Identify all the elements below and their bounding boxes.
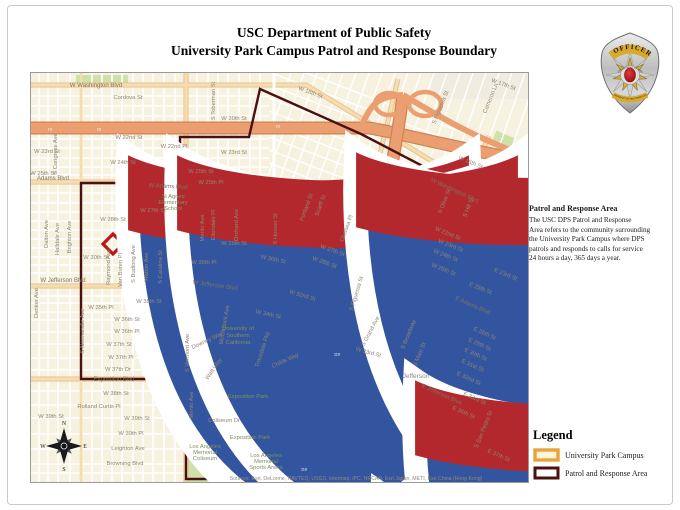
svg-text:10: 10 <box>276 124 281 129</box>
legend-item-patrol: Patrol and Response Area <box>533 466 679 480</box>
map-label: Southern <box>226 333 250 339</box>
info-body-line: the University Park Campus where DPS <box>529 235 679 245</box>
map-attribution: Sources: Esri, DeLorme, NAVTEQ, USGS, In… <box>230 476 483 482</box>
map-label: W 39th St <box>38 414 64 420</box>
map-label: S Normandie Ave <box>80 308 86 353</box>
map-label: Orchard Ave <box>234 209 240 241</box>
info-panel: Patrol and Response Area The USC DPS Pat… <box>529 204 679 264</box>
map-label: W 30th Pl <box>191 260 216 266</box>
map-label: W 37th Dr <box>105 367 131 373</box>
map-label: S Toberman St <box>211 81 217 120</box>
svg-text:110: 110 <box>301 467 308 472</box>
map-label: Adams Blvd <box>37 176 69 182</box>
map-label: S Vermont Ave <box>185 334 191 372</box>
map-label: S Congress Ave <box>53 133 59 174</box>
legend-label-patrol: Patrol and Response Area <box>565 469 647 478</box>
info-body-line: Area refers to the community surrounding <box>529 226 679 236</box>
map-label: W Washington Blvd <box>70 83 122 89</box>
map-label: W <box>40 444 46 450</box>
map-label: W 36th Pl <box>114 329 139 335</box>
map-label: W 23rd St <box>221 150 247 156</box>
map-label: Coliseum Dr <box>208 418 240 424</box>
map-label: Jefferson <box>403 373 430 380</box>
map-label: W 35th St <box>136 299 162 305</box>
map-label: Exposition Blvd <box>93 377 134 383</box>
map-label: W 28th St <box>100 217 126 223</box>
title-line-1: USC Department of Public Safety <box>30 24 638 42</box>
map-label: Exposition Park <box>228 394 268 400</box>
map-label: W 39th Pl <box>118 431 143 437</box>
info-body-line: patrols and responds to calls for servic… <box>529 245 679 255</box>
map-label: Brighton Ave <box>67 221 73 254</box>
page-title: USC Department of Public Safety Universi… <box>30 24 638 60</box>
map-label: W 35th Pl <box>88 305 113 311</box>
map-label: W 22nd Pl <box>161 144 188 150</box>
map-label: W 20th St <box>221 116 247 122</box>
map-label: E <box>83 444 87 450</box>
legend-swatch-patrol <box>533 466 560 480</box>
map-label: Menlo Ave <box>200 215 206 242</box>
map-label: W 27th St <box>140 208 166 214</box>
info-body-line: 24 hours a day, 365 days a year. <box>529 254 679 264</box>
map-label: W 38th St <box>103 391 129 397</box>
title-line-2: University Park Campus Patrol and Respon… <box>30 42 638 60</box>
svg-text:10: 10 <box>97 127 102 132</box>
legend-label-campus: University Park Campus <box>565 451 644 460</box>
map-label: Browning Blvd <box>106 461 143 467</box>
map-label: Dalton Ave <box>44 220 50 248</box>
info-body-line: The USC DPS Patrol and Response <box>529 216 679 226</box>
map-label: Walton Ave <box>144 252 150 281</box>
badge-center-stone <box>625 68 636 82</box>
svg-text:110: 110 <box>334 352 341 357</box>
map-label: W 24th St <box>110 160 136 166</box>
map-label: Rolland Curtis Pl <box>77 404 120 410</box>
svg-text:10: 10 <box>48 127 53 132</box>
map-label: W 39th St <box>124 416 150 422</box>
map-label: W 36th St <box>114 317 140 323</box>
map-label: W 37th Pl <box>108 355 133 361</box>
legend: Legend University Park Campus Patrol and… <box>533 428 679 484</box>
map-label: S <box>62 467 65 473</box>
map-label: S Budlong Ave <box>131 245 137 283</box>
legend-swatch-campus <box>533 448 560 462</box>
legend-heading: Legend <box>533 428 679 443</box>
map-label: W 22nd St <box>115 135 142 141</box>
map-label: Coliseum <box>193 456 217 462</box>
map-label: W 25th Pl <box>198 180 223 186</box>
map-label: Halldale Ave <box>55 223 61 255</box>
map-label: S Hoover St <box>273 213 279 245</box>
map-label: Menlo Ave <box>189 392 195 419</box>
map: 101010110110 W Washington BlvdCordova St… <box>31 73 528 482</box>
usc-dps-map-page: { "title": { "line1": "USC Department of… <box>0 0 680 510</box>
legend-item-campus: University Park Campus <box>533 448 679 462</box>
info-body: The USC DPS Patrol and Response Area ref… <box>529 216 679 264</box>
map-label: California <box>226 340 251 346</box>
map-label: Sports Arena <box>249 465 283 471</box>
map-label: Leighton Ave <box>111 446 144 452</box>
map-container: 101010110110 W Washington BlvdCordova St… <box>30 72 529 483</box>
map-label: School <box>164 206 182 212</box>
map-label: Raymond Ave <box>106 249 112 285</box>
map-label: Denker Ave <box>34 288 40 318</box>
map-label: Van Buren Pl <box>118 253 124 287</box>
map-label: S Catalina St <box>158 250 164 284</box>
map-label: Exposition Park <box>230 435 270 441</box>
map-label: Ellendale Pl <box>211 210 217 241</box>
map-label: W Jefferson Blvd <box>40 278 85 284</box>
map-label: W 37th St <box>106 342 132 348</box>
info-heading: Patrol and Response Area <box>529 204 679 213</box>
map-label: W 25th St <box>188 169 214 175</box>
map-label: Cordova St <box>114 95 143 101</box>
police-badge: OFFICER DEPARTMENT OF PUBLIC SAFETY UNIV… <box>598 31 662 115</box>
